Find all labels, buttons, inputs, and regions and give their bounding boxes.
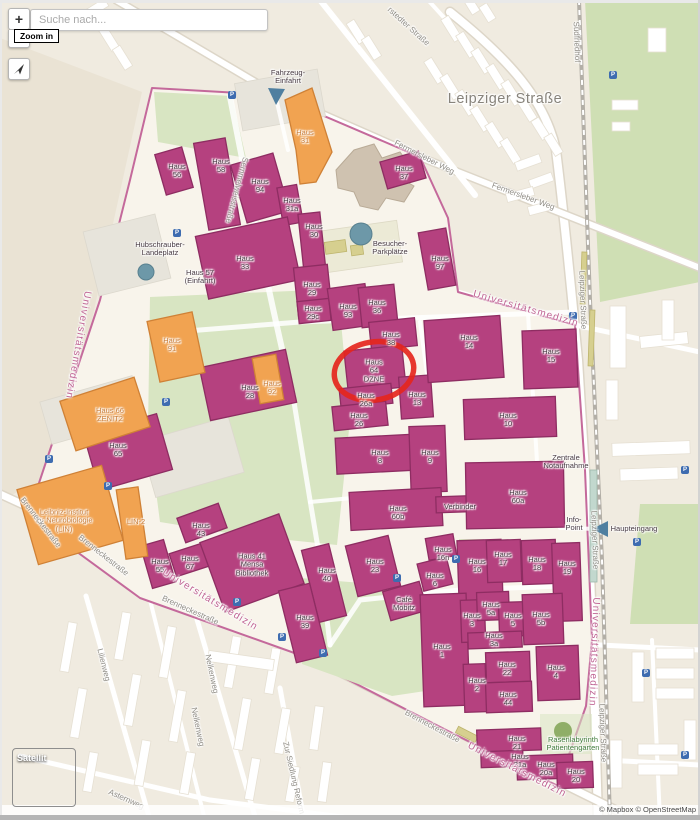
frame-left bbox=[0, 0, 2, 820]
parking-icon: P bbox=[681, 466, 689, 474]
zoom-in-tooltip: Zoom in bbox=[14, 29, 59, 43]
attribution-links[interactable]: © Mapbox © OpenStreetMap bbox=[599, 805, 696, 814]
parking-icon: P bbox=[228, 91, 236, 99]
parking-icon: P bbox=[233, 598, 241, 606]
satellite-layer-toggle[interactable]: Satellit bbox=[12, 748, 76, 807]
parking-icon: P bbox=[642, 669, 650, 677]
locate-arrow-icon bbox=[12, 62, 26, 76]
frame-top bbox=[0, 0, 700, 3]
satellite-label: Satellit bbox=[17, 753, 47, 763]
zoom-in-button[interactable]: + bbox=[8, 8, 30, 30]
parking-icon: P bbox=[393, 574, 401, 582]
pond-circle bbox=[350, 223, 372, 245]
helipad-circle bbox=[138, 264, 154, 280]
parking-icon: P bbox=[319, 649, 327, 657]
search-input[interactable] bbox=[30, 9, 268, 31]
parking-icon: P bbox=[609, 71, 617, 79]
frame-bottom bbox=[0, 815, 700, 820]
parking-icon: P bbox=[278, 633, 286, 641]
parking-icon: P bbox=[45, 455, 53, 463]
parking-icon: P bbox=[104, 482, 112, 490]
attribution-bar bbox=[0, 805, 700, 815]
map-canvas[interactable] bbox=[0, 0, 700, 820]
locate-button[interactable] bbox=[8, 58, 30, 80]
campus-map-app[interactable]: Haus 56Haus 58Haus 94Haus 31Haus 31aHaus… bbox=[0, 0, 700, 820]
parking-icon: P bbox=[633, 538, 641, 546]
parking-icon: P bbox=[569, 312, 577, 320]
parking-icon: P bbox=[162, 398, 170, 406]
parking-icon: P bbox=[681, 751, 689, 759]
parking-icon: P bbox=[452, 555, 460, 563]
parking-icon: P bbox=[173, 229, 181, 237]
labyrinth-circle bbox=[554, 722, 572, 740]
